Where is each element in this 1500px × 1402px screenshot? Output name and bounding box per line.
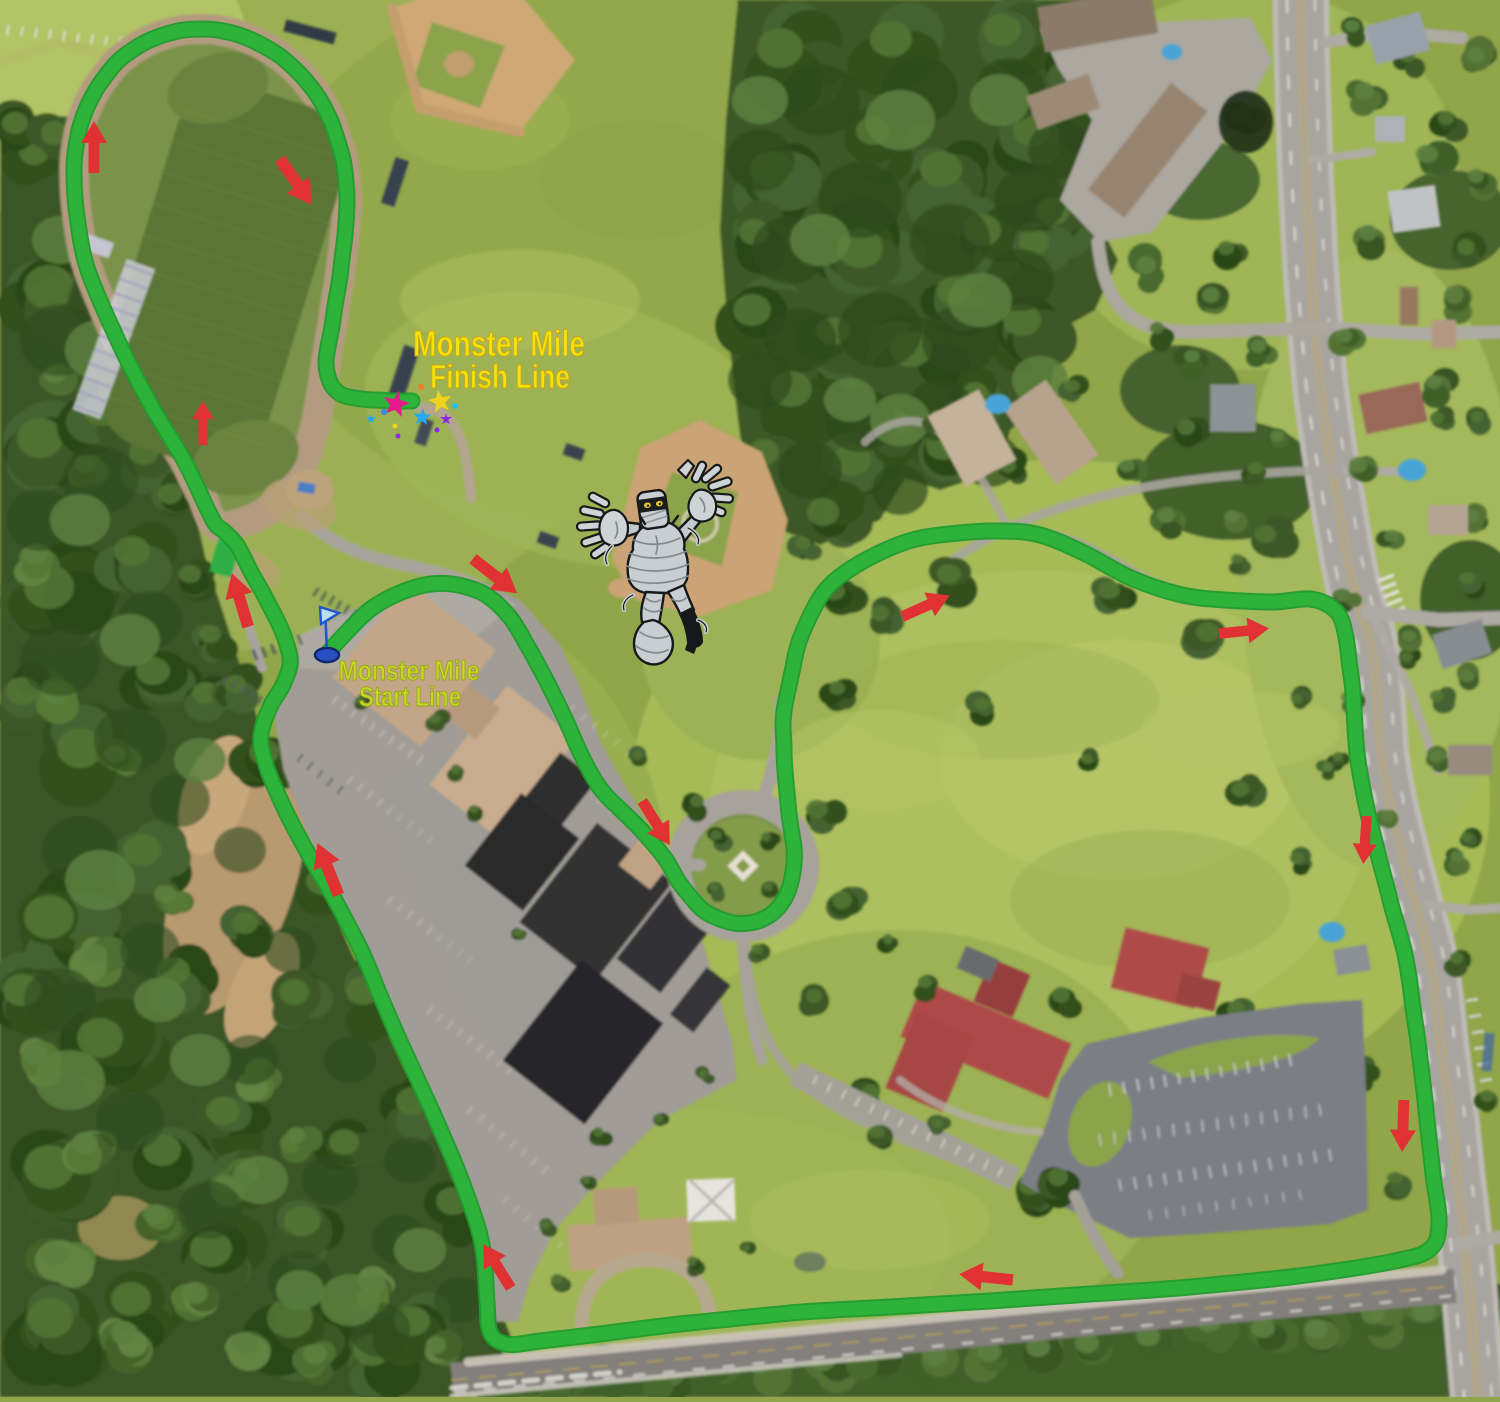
svg-text:Start Line: Start Line (359, 681, 461, 712)
svg-text:Finish Line: Finish Line (430, 358, 570, 395)
